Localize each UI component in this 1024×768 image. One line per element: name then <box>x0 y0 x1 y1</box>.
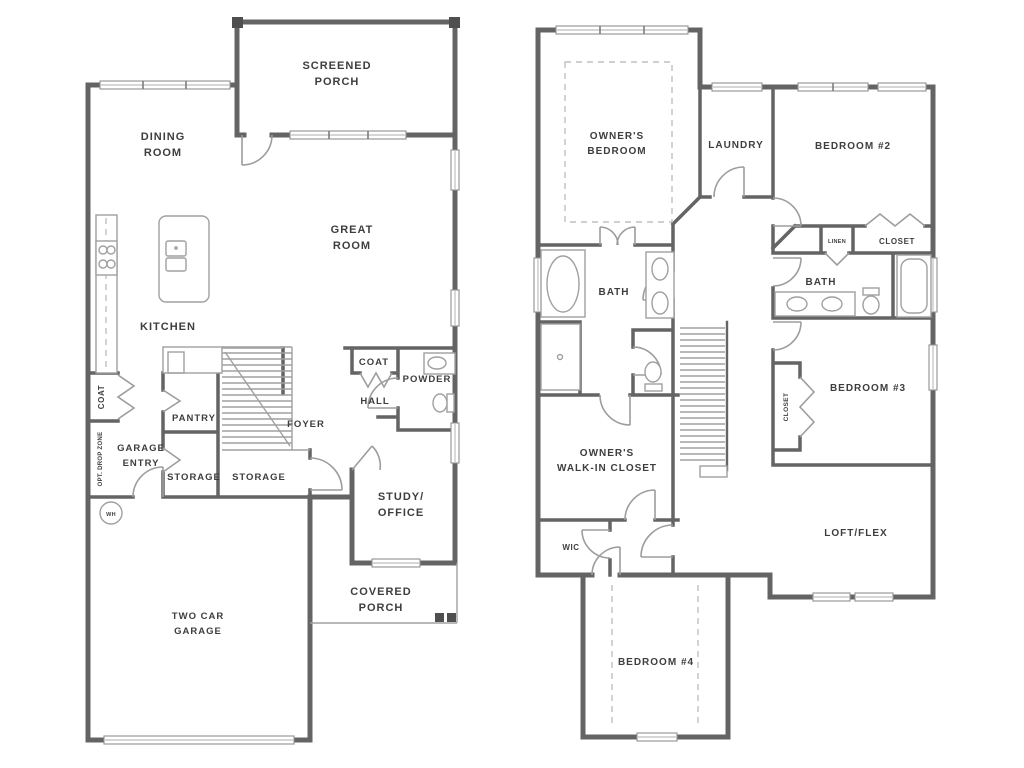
laundry-door <box>714 167 744 197</box>
room-label: KITCHEN <box>140 321 196 333</box>
garage-entry-door <box>133 467 163 497</box>
wall <box>538 87 933 575</box>
room-label: DINING <box>141 131 186 143</box>
toilet-tank <box>447 394 454 412</box>
room-label: BEDROOM #2 <box>815 141 891 152</box>
room-label: WIC <box>562 543 579 552</box>
first-floor-plan: SCREENED PORCH DINING ROOM GREAT ROOM KI… <box>88 17 460 744</box>
storage-door <box>310 458 342 490</box>
room-label: TWO CAR <box>172 611 224 622</box>
room-label: COVERED <box>350 586 411 598</box>
room-label: GREAT <box>331 224 374 236</box>
room-label: OPT. DROP ZONE <box>98 432 104 487</box>
doors <box>582 167 925 575</box>
loft-hall-door <box>641 525 673 557</box>
room-label: LOFT/FLEX <box>824 528 887 539</box>
kitchen-fixtures <box>96 215 283 373</box>
room-label: STORAGE <box>167 472 221 483</box>
room-label: SCREENED <box>302 60 371 72</box>
staircase <box>222 347 310 450</box>
porch-post <box>447 613 456 622</box>
room-label: OFFICE <box>378 507 424 519</box>
room-label: COAT <box>359 357 389 368</box>
room-label: PORCH <box>315 76 360 88</box>
storage-bifold-door <box>163 448 180 472</box>
pantry-door <box>163 390 180 412</box>
room-label: BEDROOM #3 <box>830 383 906 394</box>
study-door <box>352 446 380 470</box>
floor-plan-drawing: SCREENED PORCH DINING ROOM GREAT ROOM KI… <box>0 0 1024 768</box>
room-label: LINEN <box>828 239 846 245</box>
room-label: GARAGE <box>174 626 222 637</box>
room-label: OWNER'S <box>580 448 634 459</box>
wic-door <box>582 530 610 558</box>
vanity <box>646 252 674 318</box>
coat-bifold-door <box>118 375 134 419</box>
toilet-bowl <box>645 362 661 382</box>
water-heater-label: WH <box>106 512 116 518</box>
hall-coat-bifold-door <box>360 373 392 387</box>
room-label: WALK-IN CLOSET <box>557 463 657 474</box>
room-label: OWNER'S <box>590 131 644 142</box>
south-counter <box>163 347 222 373</box>
bedroom3-closet-door <box>800 377 814 437</box>
linen-door <box>825 253 849 265</box>
room-label: ROOM <box>333 240 371 252</box>
staircase-upper <box>680 322 727 477</box>
room-label: COAT <box>97 385 106 409</box>
porch-post <box>435 613 444 622</box>
toilet-tank <box>645 384 662 391</box>
toilet-tank <box>863 288 879 295</box>
room-label: BEDROOM <box>587 146 646 157</box>
porch-post <box>449 17 460 28</box>
wic-upper-door <box>625 490 655 520</box>
toilet-bowl <box>863 296 879 314</box>
porch-post <box>232 17 243 28</box>
room-label: FOYER <box>287 419 325 430</box>
room-label: CLOSET <box>879 237 915 246</box>
room-label: POWDER <box>403 374 452 385</box>
tray-ceiling-dash <box>565 62 672 222</box>
owners-wic-door <box>600 395 630 425</box>
stair-newel <box>700 466 727 477</box>
second-floor-labels: OWNER'S BEDROOM LAUNDRY BEDROOM #2 LINEN… <box>557 131 915 668</box>
room-label: ROOM <box>144 147 182 159</box>
room-label: BATH <box>598 287 629 298</box>
bedroom4-door <box>592 547 620 575</box>
shower <box>541 324 580 390</box>
stair-break-line <box>225 352 290 446</box>
stair-treads <box>680 328 725 460</box>
room-label: PORCH <box>359 602 404 614</box>
room-label: ENTRY <box>123 458 160 469</box>
bath-door <box>773 258 801 286</box>
room-label: CLOSET <box>783 393 790 422</box>
kitchen-counter <box>96 215 117 373</box>
room-label: STUDY/ <box>378 491 424 503</box>
wall <box>88 22 455 740</box>
second-floor-plan: OWNER'S BEDROOM LAUNDRY BEDROOM #2 LINEN… <box>534 26 937 741</box>
room-label: GARAGE <box>117 443 165 454</box>
toilet-bowl <box>433 394 447 412</box>
room-label: PANTRY <box>172 413 216 424</box>
bedroom2-door <box>773 198 801 226</box>
closet-bifold-door <box>865 214 925 226</box>
shared-bath-fixtures <box>775 255 931 317</box>
bedroom3-door <box>773 322 801 350</box>
cooktop <box>96 241 117 275</box>
floor-plan-page: SCREENED PORCH DINING ROOM GREAT ROOM KI… <box>0 0 1024 768</box>
room-label: LAUNDRY <box>708 140 764 151</box>
owners-bedroom-french-door <box>600 227 635 245</box>
room-label: BEDROOM #4 <box>618 657 694 668</box>
room-label: STORAGE <box>232 472 286 483</box>
room-label: HALL <box>360 396 389 407</box>
room-label: BATH <box>805 277 836 288</box>
porch-door <box>242 135 272 165</box>
